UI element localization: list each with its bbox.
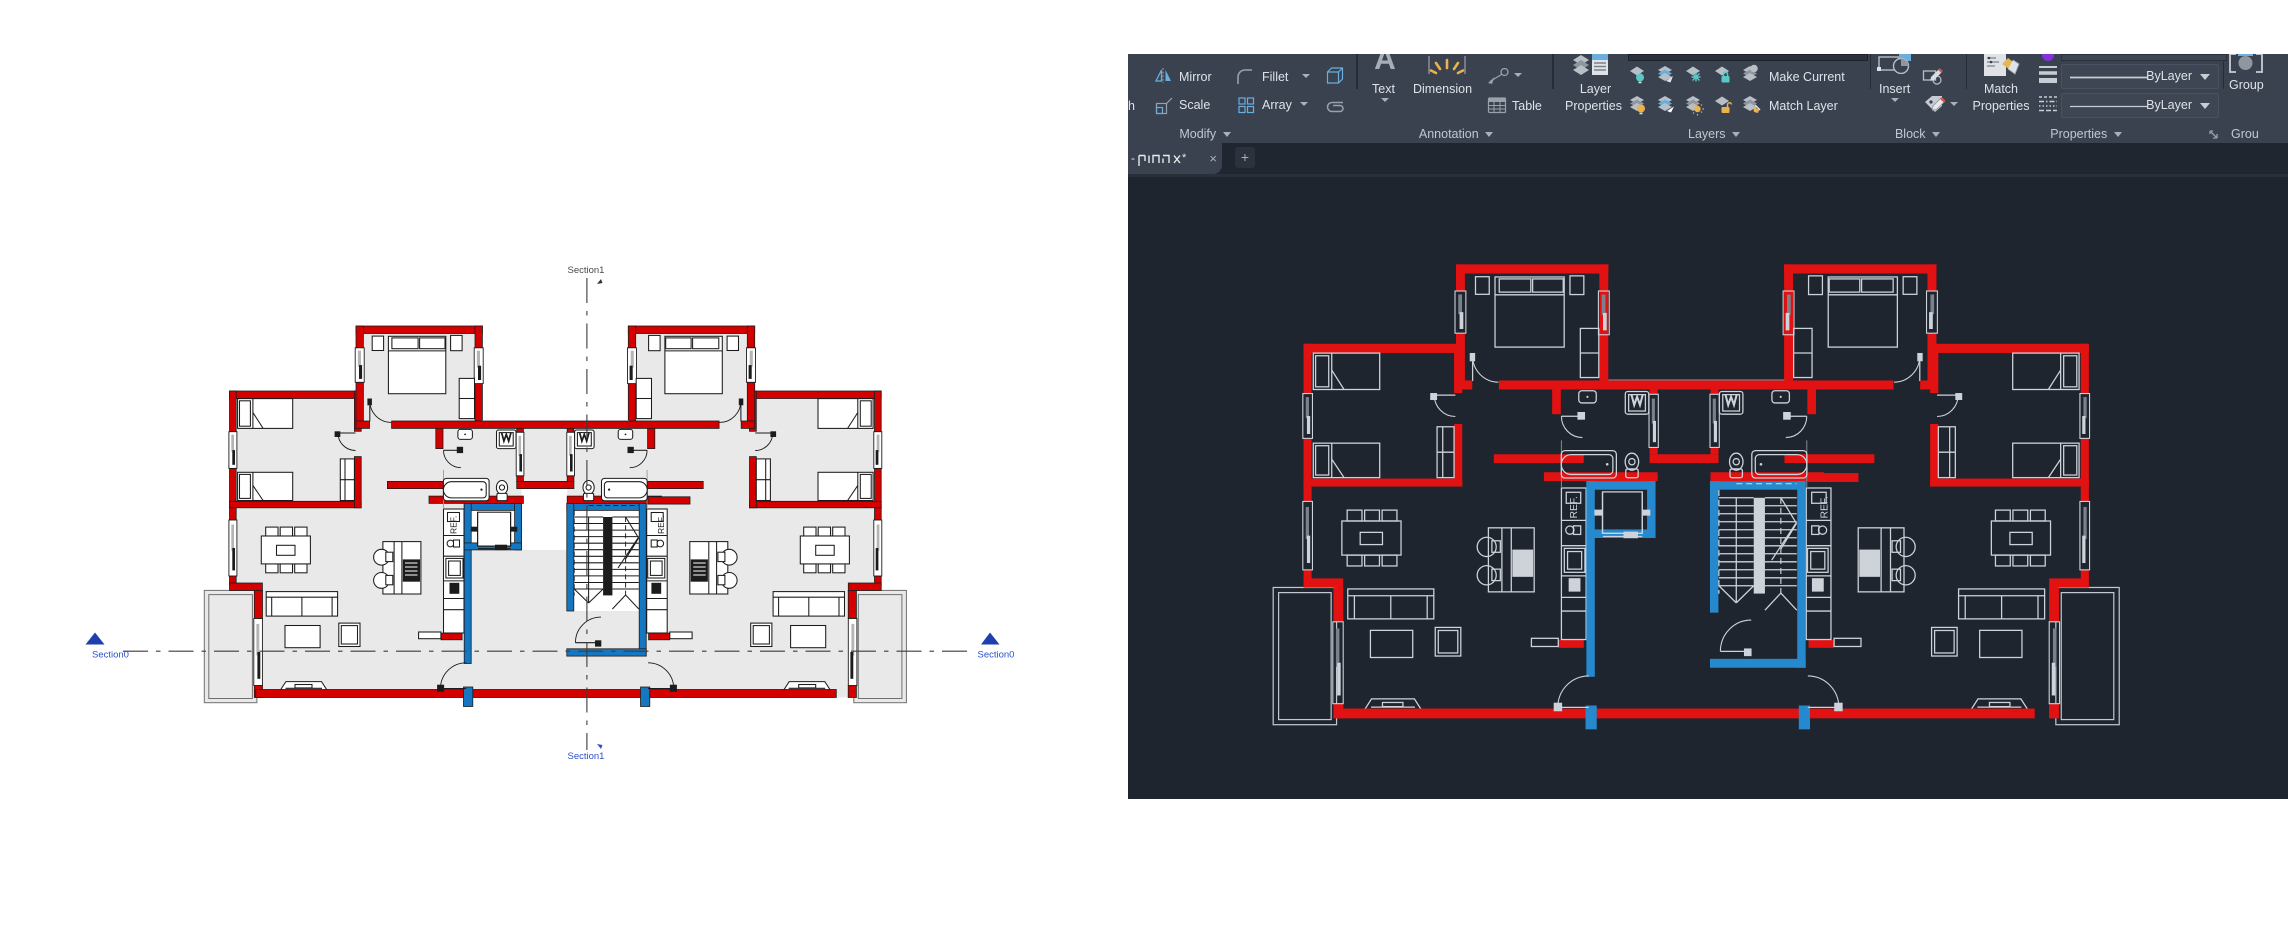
svg-text:Section1: Section1 — [568, 265, 605, 276]
svg-text:Section0: Section0 — [978, 650, 1015, 661]
svg-text:Section0: Section0 — [92, 650, 129, 661]
svg-text:*: * — [1182, 152, 1187, 164]
svg-text:Section1: Section1 — [568, 751, 605, 762]
